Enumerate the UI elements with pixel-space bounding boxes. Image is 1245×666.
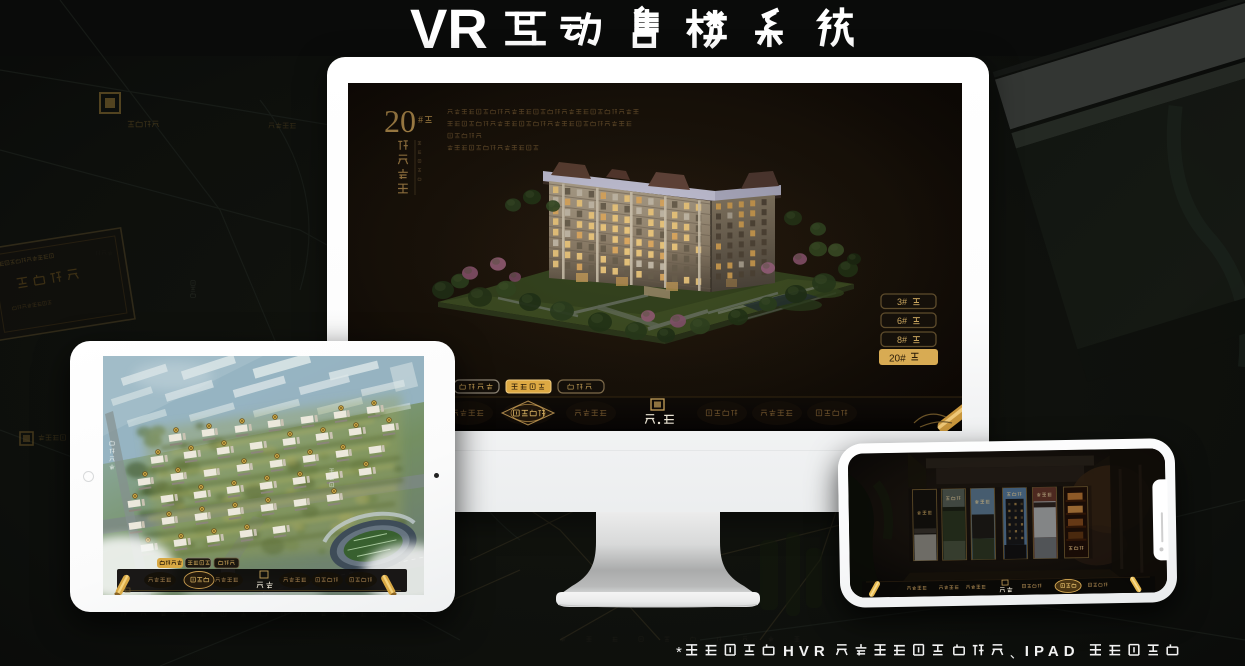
svg-text:20#: 20#: [889, 354, 906, 365]
svg-text:VR: VR: [410, 0, 488, 58]
svg-text:*: *: [676, 644, 682, 661]
svg-text:、: 、: [1010, 646, 1023, 661]
svg-text:3#: 3#: [897, 297, 907, 307]
svg-text:IPAD: IPAD: [1025, 643, 1080, 660]
svg-text:HVR: HVR: [783, 643, 830, 660]
svg-text:8#: 8#: [897, 335, 907, 345]
svg-text:6#: 6#: [897, 316, 907, 326]
